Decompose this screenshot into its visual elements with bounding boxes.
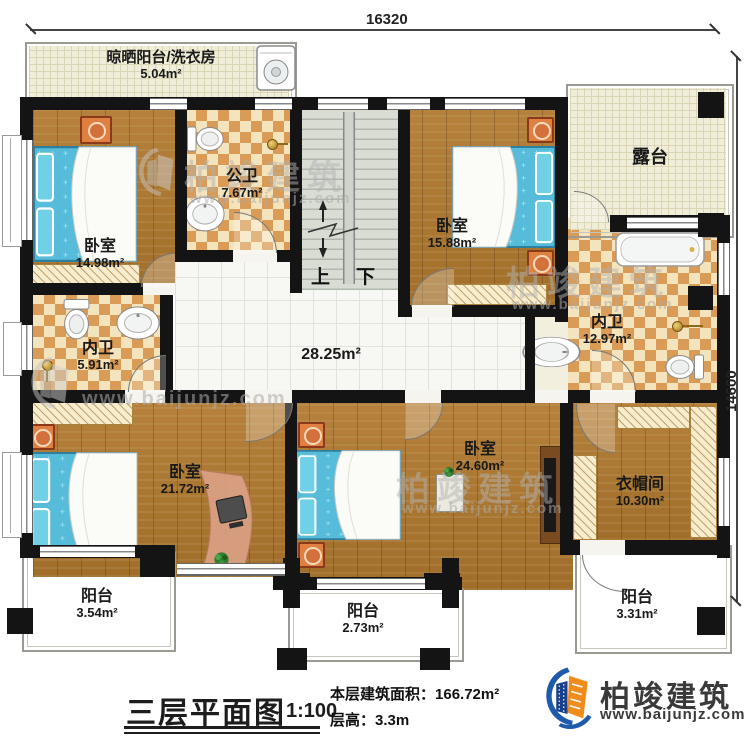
brand-logo-icon	[545, 664, 593, 734]
watermark-glyph-1	[138, 146, 178, 202]
wall-sw-s	[285, 403, 297, 577]
shower-stem-east	[681, 325, 703, 327]
dimension-top: 16320	[366, 11, 408, 28]
bay-window-sw-line	[10, 455, 11, 533]
room-label-bedroom-nw: 卧室14.98m²	[55, 238, 145, 270]
floor-height-text: 层高：3.3m	[330, 709, 409, 730]
room-label-hall: 28.25m²	[291, 346, 371, 364]
pillar-balcony-se	[697, 607, 725, 635]
room-label-public-bath: 公卫7.67m²	[202, 168, 282, 200]
room-label-bedroom-sw: 卧室21.72m²	[150, 464, 220, 496]
window-top-1	[150, 98, 187, 110]
window-stairs-2	[387, 98, 430, 110]
wardrobe-cloakroom-top	[617, 406, 690, 429]
pillar-balcony-s-bl	[277, 648, 307, 670]
room-label-balcony-s: 阳台2.73m²	[328, 603, 398, 635]
room-label-balcony-se: 阳台3.31m²	[602, 589, 672, 621]
passage-gap-alcove	[535, 390, 568, 403]
wardrobe-cloakroom-left	[573, 455, 597, 540]
dresser-s	[436, 474, 464, 512]
shower-knob-east	[672, 321, 683, 332]
bathtub-icon	[615, 232, 705, 267]
bay-window-sw	[2, 452, 22, 538]
pillar-balcony-sw	[7, 608, 33, 634]
room-label-bedroom-s: 卧室24.60m²	[445, 441, 515, 473]
bed-s-icon	[295, 450, 401, 540]
pillar-balcony-s-right-h	[424, 573, 460, 590]
pillar-sw	[140, 545, 175, 577]
room-label-bedroom-ne: 卧室15.88m²	[407, 218, 497, 250]
tv-icon	[544, 458, 556, 532]
window-right-ensuite	[718, 243, 730, 295]
stairs-direction-arrows	[306, 196, 396, 262]
brand-website: www.baijunjz.com	[600, 706, 745, 723]
nightstand-nw	[80, 116, 112, 144]
wall-alcove	[525, 315, 535, 393]
window-left-sw	[21, 455, 33, 533]
stairs-up-label: 上	[311, 262, 330, 289]
window-sliding-sw	[177, 563, 285, 576]
window-left-nw	[21, 140, 33, 240]
sink-ensuite-west-icon	[116, 306, 160, 340]
window-stairs-1	[318, 98, 368, 110]
wall-ensuite-east-partial	[688, 286, 713, 310]
room-label-terrace: 露台	[617, 147, 683, 167]
window-ensuite-east-top	[627, 217, 698, 229]
nightstand-ne-top	[527, 117, 554, 143]
wall-stairs-left	[290, 97, 302, 293]
door-gap-balcony-se	[580, 540, 625, 555]
room-label-balcony-sw: 阳台3.54m²	[62, 588, 132, 620]
window-top-2	[255, 98, 292, 110]
room-label-laundry: 晾晒阳台/洗衣房5.04m²	[55, 50, 267, 81]
bay-window-ensuite-west	[3, 322, 22, 376]
wardrobe-cloakroom-right	[690, 406, 717, 538]
dimension-right-line	[736, 56, 738, 602]
pillar-terrace-top	[698, 92, 724, 118]
room-label-cloakroom: 衣帽间10.30m²	[605, 476, 675, 508]
dimension-top-line	[30, 29, 716, 31]
pillar-balcony-s-br	[420, 648, 450, 670]
door-gap-bedroom-s	[405, 390, 441, 403]
stairs-down-label: 下	[356, 262, 375, 289]
toilet-public-icon	[187, 124, 225, 154]
room-label-ensuite-east: 内卫12.97m²	[571, 314, 643, 346]
nightstand-s-top	[298, 422, 325, 448]
toilet-ensuite-east-icon	[664, 352, 704, 382]
sink-public-icon	[185, 196, 225, 232]
floor-plan: 柏竣建筑 www.baijunjz.com www.baijunjz.com 柏…	[0, 0, 750, 740]
nightstand-ne-bottom	[527, 250, 554, 276]
door-gap-bedroom-sw	[245, 390, 292, 403]
bed-sw-icon	[28, 452, 138, 558]
room-label-ensuite-west: 内卫5.91m²	[62, 340, 134, 372]
title-underline-2	[124, 732, 320, 734]
title-underline-1	[124, 726, 320, 729]
bay-window-nw-line	[10, 138, 11, 242]
window-bedroom-ne	[445, 98, 525, 110]
wardrobe-bedroom-ne	[447, 284, 547, 305]
window-right-cloakroom	[718, 458, 730, 526]
wall-stairs-right	[398, 97, 410, 317]
wall-ne-terrace	[555, 97, 568, 322]
valve-knob	[267, 139, 278, 150]
toilet-ensuite-west-icon	[61, 299, 92, 341]
nightstand-s-bottom	[298, 542, 325, 568]
dimension-right: 14600	[723, 370, 740, 412]
window-bedroom-s-bottom	[317, 578, 425, 589]
floor-area-text: 本层建筑面积：166.72m²	[330, 683, 499, 704]
pillar-terrace-bottom	[698, 213, 724, 237]
bay-window-nw	[2, 135, 22, 247]
wall-s-cloakroom	[560, 403, 573, 540]
window-bedroom-sw-bottom	[40, 546, 135, 557]
